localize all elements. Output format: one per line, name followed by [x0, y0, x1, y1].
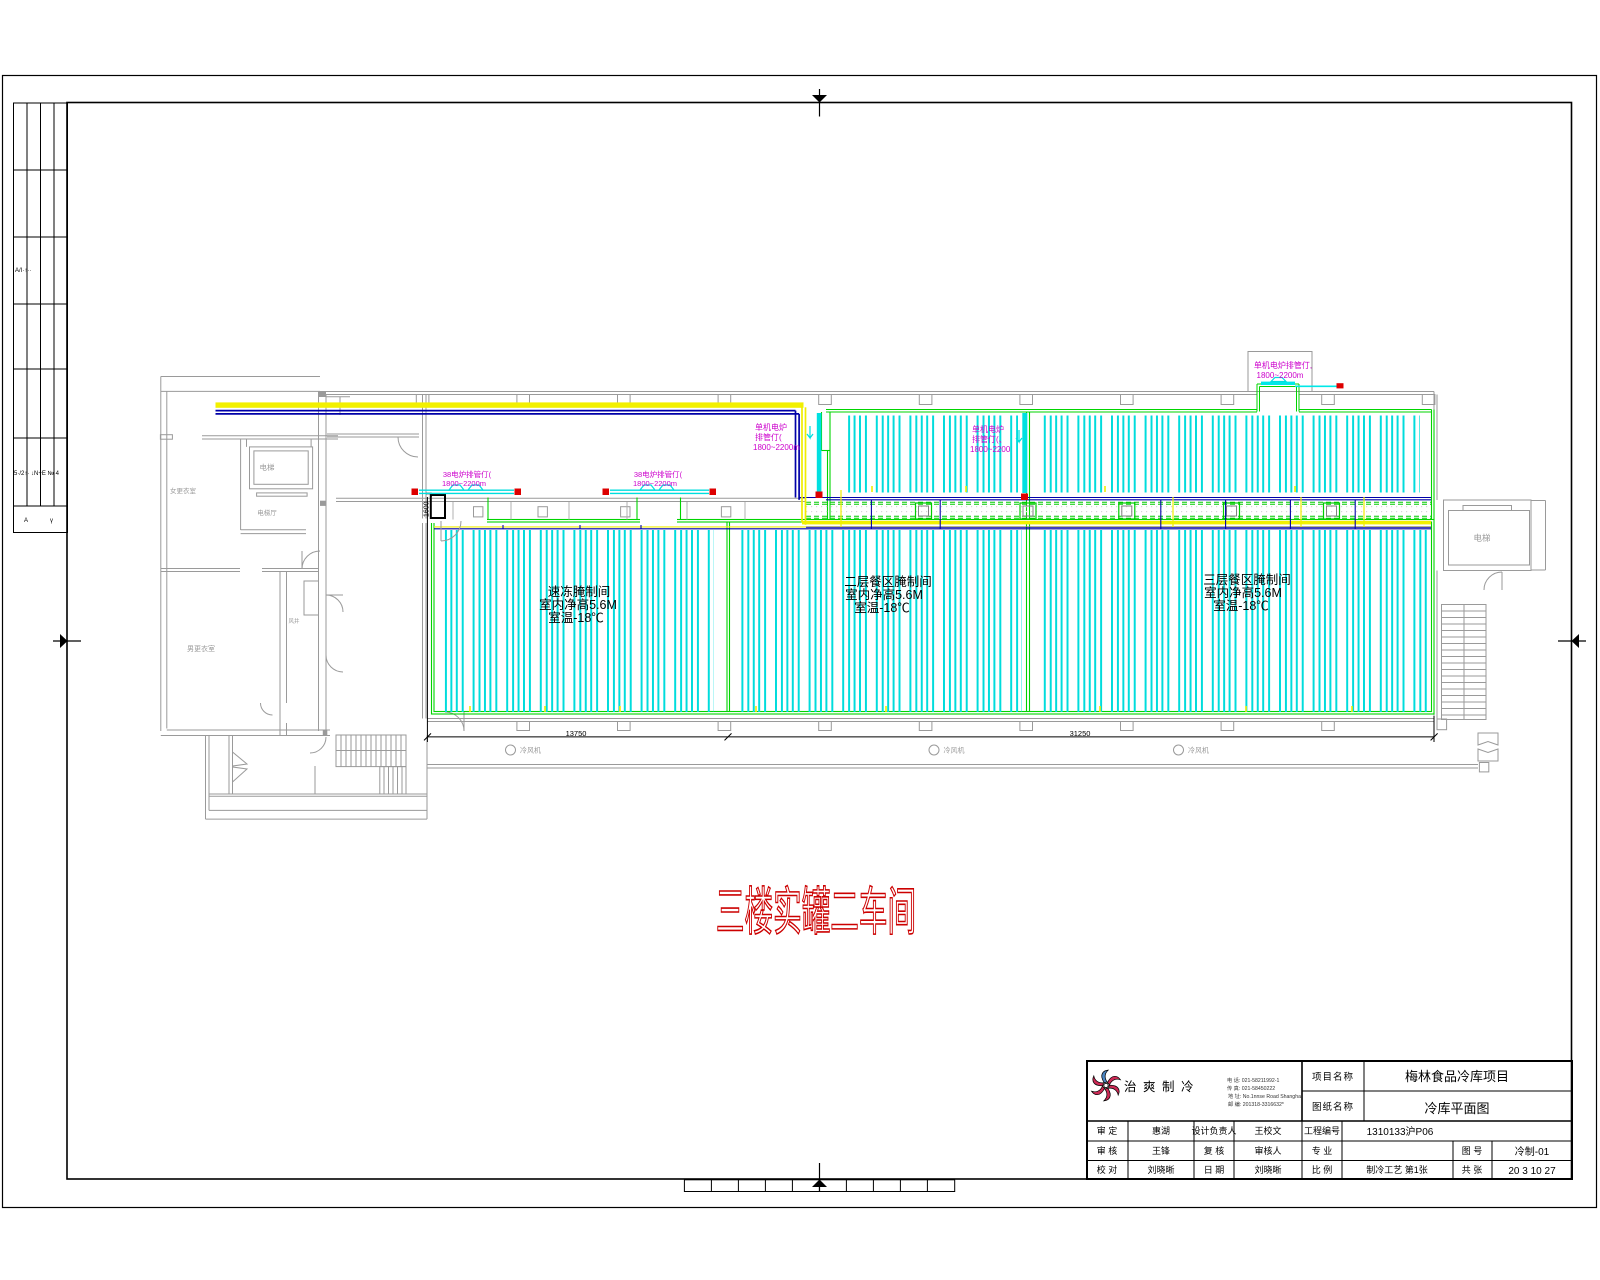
svg-text:复 核: 复 核 — [1204, 1145, 1225, 1156]
svg-text:校 对: 校 对 — [1097, 1164, 1118, 1175]
svg-text:电梯厅: 电梯厅 — [257, 508, 277, 517]
svg-text:冷制-01: 冷制-01 — [1515, 1145, 1550, 1158]
svg-text:室内净高5.6M: 室内净高5.6M — [845, 587, 923, 602]
svg-text:审 核: 审 核 — [1097, 1145, 1118, 1156]
svg-text:1310133沪P06: 1310133沪P06 — [1367, 1125, 1434, 1138]
svg-text:室温-18℃: 室温-18℃ — [1213, 598, 1269, 613]
svg-text:刘晓晰: 刘晓晰 — [1254, 1164, 1281, 1175]
svg-text:设计负责人: 设计负责人 — [1191, 1125, 1236, 1136]
svg-text:38电炉排管仃(: 38电炉排管仃( — [443, 469, 492, 479]
svg-text:王校文: 王校文 — [1254, 1125, 1281, 1136]
svg-text:A: A — [24, 518, 28, 524]
svg-text:刘晓晰: 刘晓晰 — [1147, 1164, 1174, 1175]
svg-text:20 3 10 27: 20 3 10 27 — [1508, 1166, 1556, 1177]
svg-text:梅林食品冷库项目: 梅林食品冷库项目 — [1405, 1069, 1509, 1084]
svg-text:1800~2200m: 1800~2200m — [1257, 371, 1304, 380]
svg-text:室内净高5.6M: 室内净高5.6M — [539, 597, 617, 612]
svg-text:二层餐区腌制间: 二层餐区腌制间 — [844, 574, 932, 589]
svg-text:惠湖: 惠湖 — [1152, 1125, 1170, 1136]
svg-text:三楼实罐二车间: 三楼实罐二车间 — [716, 883, 916, 941]
svg-text:审核人: 审核人 — [1254, 1145, 1281, 1156]
svg-text:共 张: 共 张 — [1462, 1165, 1483, 1175]
svg-text:图 号: 图 号 — [1462, 1146, 1483, 1156]
svg-text:冷风机: 冷风机 — [520, 746, 541, 755]
svg-text:图纸名称: 图纸名称 — [1312, 1101, 1354, 1113]
svg-text:电梯: 电梯 — [1473, 533, 1491, 543]
svg-text:13750: 13750 — [566, 729, 587, 738]
svg-text:电 话: 021-58211992-1: 电 话: 021-58211992-1 — [1227, 1076, 1280, 1084]
svg-text:γ: γ — [50, 518, 53, 524]
svg-text:日 期: 日 期 — [1204, 1165, 1225, 1175]
svg-text:项目名称: 项目名称 — [1312, 1071, 1354, 1083]
svg-text:邮 编: 201318-3316632*: 邮 编: 201318-3316632* — [1228, 1100, 1284, 1108]
svg-text:审 定: 审 定 — [1097, 1125, 1118, 1136]
svg-text:电梯: 电梯 — [260, 462, 275, 472]
svg-text:速冻腌制间: 速冻腌制间 — [548, 584, 611, 599]
svg-text:冷库平面图: 冷库平面图 — [1424, 1101, 1489, 1116]
svg-text:1800~2200m: 1800~2200m — [753, 443, 800, 452]
svg-text:1800~2200m: 1800~2200m — [633, 479, 677, 488]
svg-text:单机电炉: 单机电炉 — [972, 424, 1004, 434]
svg-text:冷风机: 冷风机 — [1188, 746, 1209, 755]
svg-text:室温-18℃: 室温-18℃ — [548, 610, 604, 625]
svg-text:A/I·↑··: A/I·↑·· — [15, 268, 31, 274]
svg-text:传 真: 021-58450222: 传 真: 021-58450222 — [1227, 1084, 1275, 1092]
svg-text:治爽制冷: 治爽制冷 — [1124, 1080, 1200, 1094]
svg-text:室内净高5.6M: 室内净高5.6M — [1204, 585, 1282, 600]
svg-text:38电炉排管仃(: 38电炉排管仃( — [634, 469, 683, 479]
svg-text:1800~2200: 1800~2200 — [970, 445, 1011, 454]
svg-text:5·/2↑· ↓N+E № 4: 5·/2↑· ↓N+E № 4 — [14, 470, 60, 477]
svg-text:女更衣室: 女更衣室 — [170, 486, 197, 495]
svg-text:室温-18℃: 室温-18℃ — [854, 600, 910, 615]
svg-text:三层餐区腌制间: 三层餐区腌制间 — [1203, 572, 1291, 587]
svg-text:冷风机: 冷风机 — [944, 746, 965, 755]
svg-text:单机电炉: 单机电炉 — [755, 422, 787, 432]
svg-text:单机电炉排管仃,: 单机电炉排管仃, — [1254, 360, 1312, 370]
svg-text:1800~2200m: 1800~2200m — [442, 479, 486, 488]
svg-text:31250: 31250 — [1070, 729, 1091, 738]
svg-text:风井: 风井 — [288, 617, 300, 625]
svg-text:专 业: 专 业 — [1312, 1145, 1333, 1156]
svg-text:地 址: No.1nnse Road Shangha: 地 址: No.1nnse Road Shangha — [1228, 1092, 1301, 1100]
svg-text:男更衣室: 男更衣室 — [187, 644, 215, 653]
svg-text:王锋: 王锋 — [1152, 1145, 1170, 1156]
svg-text:比 例: 比 例 — [1312, 1164, 1333, 1175]
svg-text:排管仃(、: 排管仃(、 — [972, 434, 1007, 444]
svg-text:制冷工艺 第1张: 制冷工艺 第1张 — [1366, 1164, 1428, 1175]
svg-text:工程编号: 工程编号 — [1304, 1125, 1340, 1136]
svg-text:排管仃(: 排管仃( — [755, 432, 782, 442]
